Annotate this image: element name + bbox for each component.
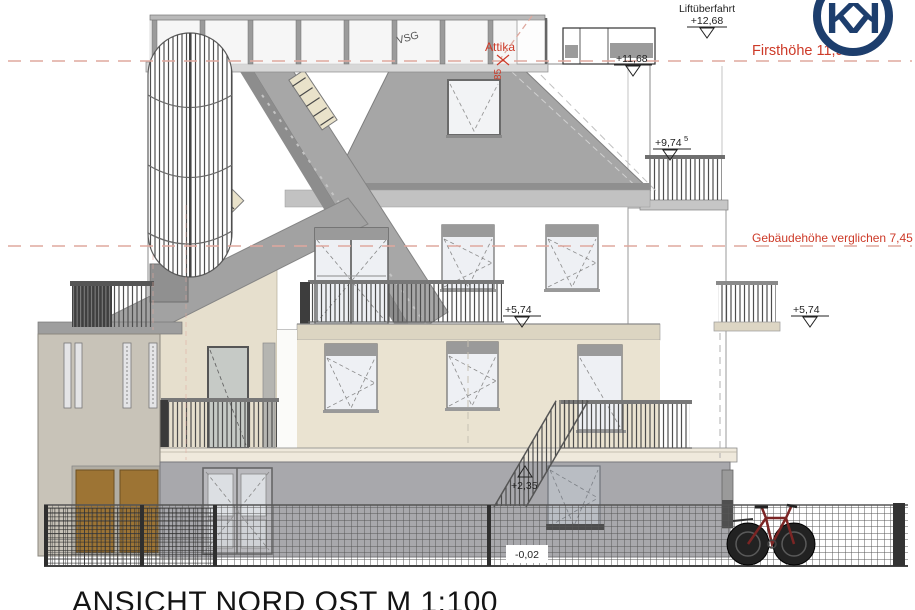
upper-floor-slab-band	[297, 324, 660, 340]
right-wing-railing-handrail	[645, 155, 725, 159]
upper-floor-balcony-railing	[300, 280, 504, 324]
upper-level-mid-value: +5,74	[505, 304, 532, 316]
company-logo: K K	[817, 0, 889, 52]
wall-recess	[277, 330, 297, 448]
level-marker-ground: -0,02	[506, 545, 548, 563]
fence-post	[213, 505, 217, 566]
lift-overrun-value: +12,68	[691, 15, 724, 27]
first-floor-window	[445, 342, 500, 411]
terrace-level-value: +9,74	[655, 137, 682, 149]
fence-post	[140, 505, 144, 566]
lift-overrun-label: Liftüberfahrt	[679, 3, 735, 15]
first-floor-window	[323, 344, 379, 413]
elevation-drawing: Firsthöhe 11,95m Gebäudehöhe verglichen …	[0, 0, 915, 610]
building-height-label: Gebäudehöhe verglichen 7,45	[752, 231, 913, 245]
drawing-title: ANSICHT NORD OST M 1:100	[72, 586, 498, 610]
right-wing-roof-slab	[640, 200, 728, 210]
attika-level-value: +11,68	[616, 53, 648, 65]
upper-floor-window	[544, 225, 600, 292]
attika-dimension: 85	[493, 68, 504, 80]
dormer-window	[446, 80, 502, 138]
first-level-value: +2,35	[511, 480, 538, 492]
attika-label: Attika	[485, 40, 515, 54]
ground-level-value: -0,02	[515, 549, 539, 561]
slot-window	[64, 343, 71, 408]
right-side-balcony	[714, 281, 780, 331]
fence-post	[487, 505, 491, 566]
railing-handrail	[150, 15, 545, 20]
attika-wall-pier	[517, 20, 547, 64]
right-wing-terrace-railing	[648, 158, 722, 200]
logo-letter-k-mirrored: K	[849, 0, 881, 43]
spiral-staircase	[148, 33, 232, 277]
architectural-drawing-sheet: Firsthöhe 11,95m Gebäudehöhe verglichen …	[0, 0, 915, 610]
tower-balcony-railing	[160, 398, 279, 447]
terrace-level-superscript: 5	[684, 134, 688, 143]
railing-handrail	[70, 281, 154, 286]
slot-window	[75, 343, 82, 408]
left-wing-balcony-railing	[70, 281, 154, 327]
ground-floor-slab-band	[160, 448, 737, 462]
fence-post	[44, 505, 48, 566]
upper-level-right-value: +5,74	[793, 304, 820, 316]
eave-fascia-dark	[330, 183, 650, 190]
fence-post	[893, 503, 905, 566]
